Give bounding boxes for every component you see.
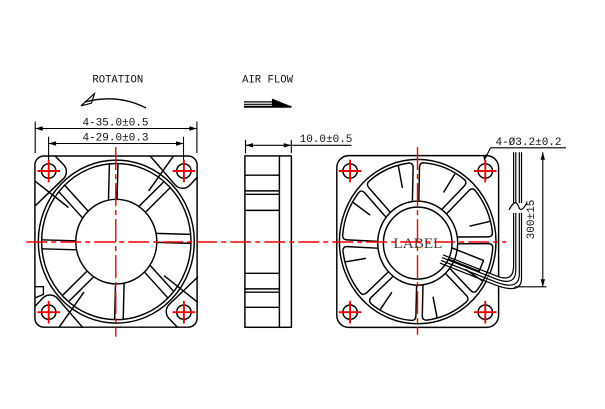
svg-text:ROTATION: ROTATION	[92, 74, 143, 86]
svg-text:4-29.0±0.3: 4-29.0±0.3	[82, 133, 148, 145]
svg-text:10.0±0.5: 10.0±0.5	[300, 134, 353, 146]
svg-text:300±15: 300±15	[526, 200, 538, 240]
svg-text:4-Ø3.2±0.2: 4-Ø3.2±0.2	[495, 137, 561, 149]
svg-text:AIR FLOW: AIR FLOW	[242, 74, 294, 86]
svg-text:4-35.0±0.5: 4-35.0±0.5	[82, 117, 148, 129]
